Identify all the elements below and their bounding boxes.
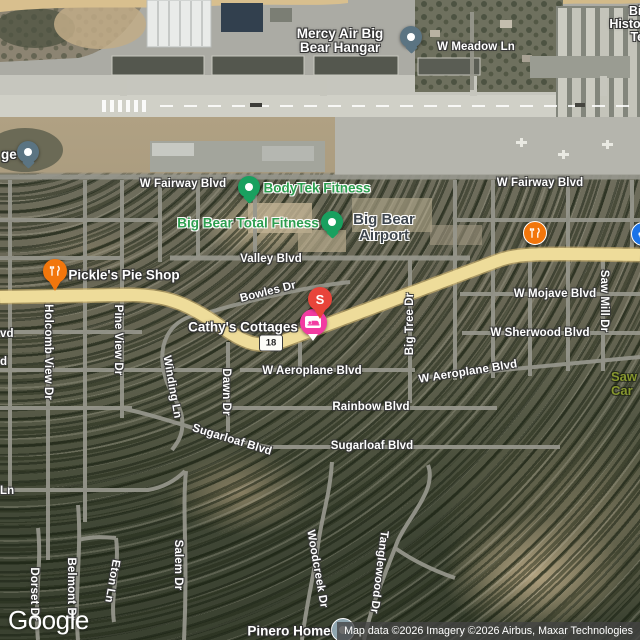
bodytek-fitness-pin[interactable] <box>238 176 260 198</box>
fork-knife-icon <box>49 265 61 277</box>
map-canvas[interactable]: W Meadow Ln W Fairway Blvd W Fairway Blv… <box>0 0 640 640</box>
s-marker-letter: S <box>316 292 325 307</box>
poi-dot-icon <box>245 183 253 191</box>
pickles-pie-shop-pin[interactable] <box>43 259 67 283</box>
s-marker-pin[interactable]: S <box>308 287 332 311</box>
ge-poi-pin[interactable] <box>17 141 39 163</box>
poi-dot-icon <box>328 218 336 226</box>
poi-dot-icon <box>407 33 415 41</box>
big-bear-total-fitness-pin[interactable] <box>321 211 343 233</box>
pin-tail <box>49 281 61 291</box>
route-18-shield: 18 <box>259 335 283 352</box>
poi-dot-icon <box>24 148 32 156</box>
pin-tail <box>308 334 318 341</box>
restaurant-poi-pin[interactable] <box>523 221 547 245</box>
google-logo[interactable]: Google <box>8 605 89 636</box>
route-18-number: 18 <box>266 338 277 349</box>
fork-knife-icon <box>529 227 541 239</box>
pin-tail <box>314 309 326 319</box>
map-attribution[interactable]: Map data ©2026 Imagery ©2026 Airbus, Max… <box>337 622 640 640</box>
mercy-air-hangar-pin[interactable] <box>400 26 422 48</box>
